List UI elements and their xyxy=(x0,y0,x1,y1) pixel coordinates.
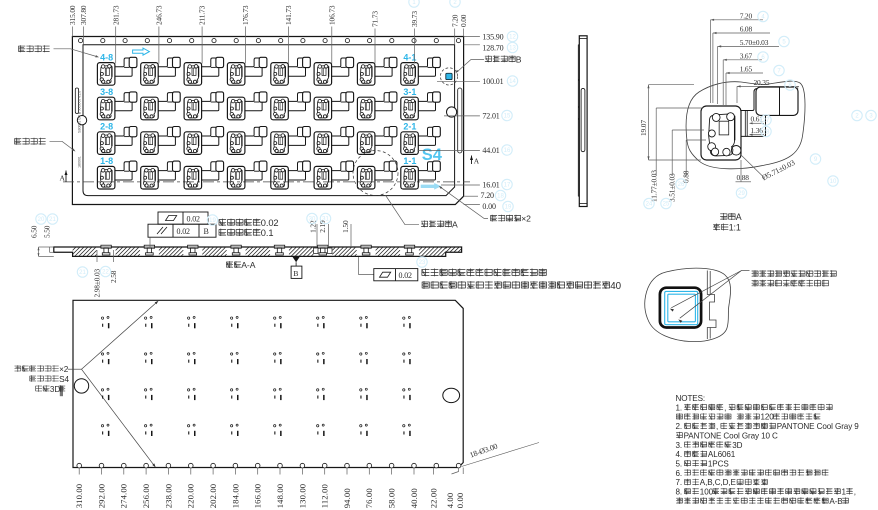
svg-text:130.00: 130.00 xyxy=(297,484,307,509)
svg-text:128.70: 128.70 xyxy=(482,43,503,52)
svg-text:5.70±0.03: 5.70±0.03 xyxy=(740,38,769,47)
svg-text:17: 17 xyxy=(504,183,511,189)
svg-text:202.00: 202.00 xyxy=(208,484,218,509)
svg-text:NOTES:: NOTES: xyxy=(676,394,706,403)
svg-text:315.00: 315.00 xyxy=(68,5,77,25)
svg-text:39.73: 39.73 xyxy=(410,11,419,27)
svg-text:141.73: 141.73 xyxy=(284,5,293,25)
svg-text:22: 22 xyxy=(102,270,109,276)
svg-text:6.: 6. xyxy=(676,469,683,478)
svg-text:238.00: 238.00 xyxy=(163,484,173,509)
svg-text:94.00: 94.00 xyxy=(342,488,352,508)
svg-text:19.07: 19.07 xyxy=(639,120,648,136)
svg-text:148.00: 148.00 xyxy=(275,484,285,509)
svg-text:A: A xyxy=(474,157,480,166)
svg-text:4.: 4. xyxy=(676,450,683,459)
svg-text:B: B xyxy=(516,54,522,64)
svg-text:A-A: A-A xyxy=(241,260,255,270)
svg-text:21: 21 xyxy=(79,270,86,276)
svg-text:1.65: 1.65 xyxy=(740,65,753,74)
svg-text:0.88: 0.88 xyxy=(737,173,750,182)
svg-text:106.73: 106.73 xyxy=(327,5,336,25)
svg-text:23: 23 xyxy=(419,260,426,266)
svg-text:30: 30 xyxy=(309,217,316,223)
svg-text:1: 1 xyxy=(842,488,847,497)
svg-text:20.35: 20.35 xyxy=(754,78,770,87)
svg-text:3-8: 3-8 xyxy=(100,87,113,97)
svg-text:AL6061: AL6061 xyxy=(708,450,736,459)
svg-text:58.00: 58.00 xyxy=(387,488,397,508)
svg-text:6.50: 6.50 xyxy=(30,225,39,238)
svg-text:11.77±0.03: 11.77±0.03 xyxy=(650,170,659,202)
svg-text:281.73: 281.73 xyxy=(111,5,120,25)
svg-text:5.: 5. xyxy=(676,460,683,469)
svg-text:16.01: 16.01 xyxy=(482,180,499,189)
svg-text:S30061 G4 B XXXXX V1.0: S30061 G4 B XXXXX V1.0 xyxy=(78,91,82,133)
svg-text:12: 12 xyxy=(509,35,516,41)
svg-text:3.: 3. xyxy=(676,441,683,450)
svg-text:1PCS: 1PCS xyxy=(708,460,729,469)
svg-text:25: 25 xyxy=(663,202,670,208)
svg-text:19: 19 xyxy=(209,218,216,224)
svg-text:76.00: 76.00 xyxy=(364,488,374,508)
svg-text:166.00: 166.00 xyxy=(253,484,263,509)
svg-text:19: 19 xyxy=(505,205,512,211)
svg-text:112.00: 112.00 xyxy=(320,484,330,508)
svg-text:246.73: 246.73 xyxy=(155,5,164,25)
svg-text:A-B: A-B xyxy=(829,497,842,506)
svg-text:16: 16 xyxy=(504,148,511,154)
svg-text:2-1: 2-1 xyxy=(403,122,416,132)
svg-text:2-8: 2-8 xyxy=(100,122,113,132)
svg-text:3.51±0.03: 3.51±0.03 xyxy=(668,173,677,202)
svg-text:176.73: 176.73 xyxy=(241,5,250,25)
svg-text:S4: S4 xyxy=(59,375,69,384)
svg-text:7.20: 7.20 xyxy=(740,11,753,20)
svg-text:22.00: 22.00 xyxy=(428,488,438,508)
svg-text:A: A xyxy=(452,219,458,229)
svg-text:0.02: 0.02 xyxy=(399,271,413,280)
svg-text:10: 10 xyxy=(830,179,837,185)
svg-text:31: 31 xyxy=(322,217,329,223)
svg-text:211.73: 211.73 xyxy=(198,5,207,25)
svg-text:71.73: 71.73 xyxy=(371,11,380,27)
svg-text:20: 20 xyxy=(38,217,45,223)
svg-text:310.00: 310.00 xyxy=(74,484,84,509)
svg-text:1.: 1. xyxy=(676,403,683,412)
svg-text:15: 15 xyxy=(504,114,511,120)
svg-text:120: 120 xyxy=(761,413,775,422)
svg-text:184.00: 184.00 xyxy=(230,484,240,509)
svg-text:40.00: 40.00 xyxy=(409,488,419,508)
svg-text:220.00: 220.00 xyxy=(186,484,196,509)
svg-text:0.00: 0.00 xyxy=(459,14,468,27)
svg-text:100: 100 xyxy=(700,488,714,497)
svg-text:3.67: 3.67 xyxy=(740,51,753,60)
svg-text:0.02: 0.02 xyxy=(177,227,191,236)
svg-text:S4: S4 xyxy=(422,146,443,164)
svg-text:0.00: 0.00 xyxy=(482,202,496,211)
svg-text:,: , xyxy=(716,422,718,431)
svg-text:13: 13 xyxy=(509,46,516,52)
svg-text:B: B xyxy=(293,269,298,278)
svg-text:180901: 180901 xyxy=(78,156,82,168)
svg-text:7.20: 7.20 xyxy=(481,191,495,200)
svg-text:8.: 8. xyxy=(676,488,683,497)
svg-text:29: 29 xyxy=(738,191,745,197)
svg-text:72.01: 72.01 xyxy=(482,111,499,120)
svg-text:26: 26 xyxy=(678,182,685,188)
svg-text:40: 40 xyxy=(610,281,621,292)
svg-text:274.00: 274.00 xyxy=(119,484,129,509)
svg-text:1-8: 1-8 xyxy=(100,156,113,166)
svg-text:21: 21 xyxy=(49,217,56,223)
svg-text:A: A xyxy=(60,174,66,183)
svg-text:2.: 2. xyxy=(676,422,683,431)
svg-text:4.00: 4.00 xyxy=(445,493,455,509)
svg-text:4-8: 4-8 xyxy=(100,52,113,62)
svg-text:292.00: 292.00 xyxy=(96,484,106,509)
svg-text:0.00: 0.00 xyxy=(455,493,465,509)
svg-text:3-1: 3-1 xyxy=(403,87,416,97)
svg-text:B: B xyxy=(204,227,209,236)
svg-text:6.08: 6.08 xyxy=(740,25,753,34)
svg-text:7.20: 7.20 xyxy=(450,14,459,27)
svg-text:×2: ×2 xyxy=(59,365,69,374)
svg-text:,: , xyxy=(724,403,726,412)
svg-text:28: 28 xyxy=(763,130,770,136)
svg-text:×2: ×2 xyxy=(521,214,531,224)
svg-text:1.50: 1.50 xyxy=(341,220,350,233)
svg-text:44.01: 44.01 xyxy=(482,146,499,155)
svg-text:135.90: 135.90 xyxy=(482,32,503,41)
svg-text:256.00: 256.00 xyxy=(141,484,151,509)
svg-text:A,B,C,D,E: A,B,C,D,E xyxy=(700,478,737,487)
svg-text:PANTONE Cool Gray 10 C: PANTONE Cool Gray 10 C xyxy=(684,431,778,440)
svg-text:A: A xyxy=(736,212,742,222)
svg-text:,: , xyxy=(854,488,856,497)
svg-text:3D: 3D xyxy=(732,441,742,450)
svg-text:PANTONE Cool Gray 9: PANTONE Cool Gray 9 xyxy=(777,422,860,431)
svg-text:1-1: 1-1 xyxy=(403,156,416,166)
svg-text:27: 27 xyxy=(763,118,770,124)
svg-text:0.1: 0.1 xyxy=(261,228,274,238)
svg-text:0.02: 0.02 xyxy=(261,218,279,228)
svg-text:5.50: 5.50 xyxy=(43,225,52,238)
svg-text:24: 24 xyxy=(646,202,653,208)
svg-text:7.: 7. xyxy=(676,478,683,487)
svg-text:18: 18 xyxy=(497,194,504,200)
svg-text:307.80: 307.80 xyxy=(79,5,88,25)
svg-text:0.02: 0.02 xyxy=(187,214,201,223)
svg-text:14: 14 xyxy=(509,79,516,85)
svg-text:100.01: 100.01 xyxy=(482,77,503,86)
svg-text:1:1: 1:1 xyxy=(729,223,741,233)
